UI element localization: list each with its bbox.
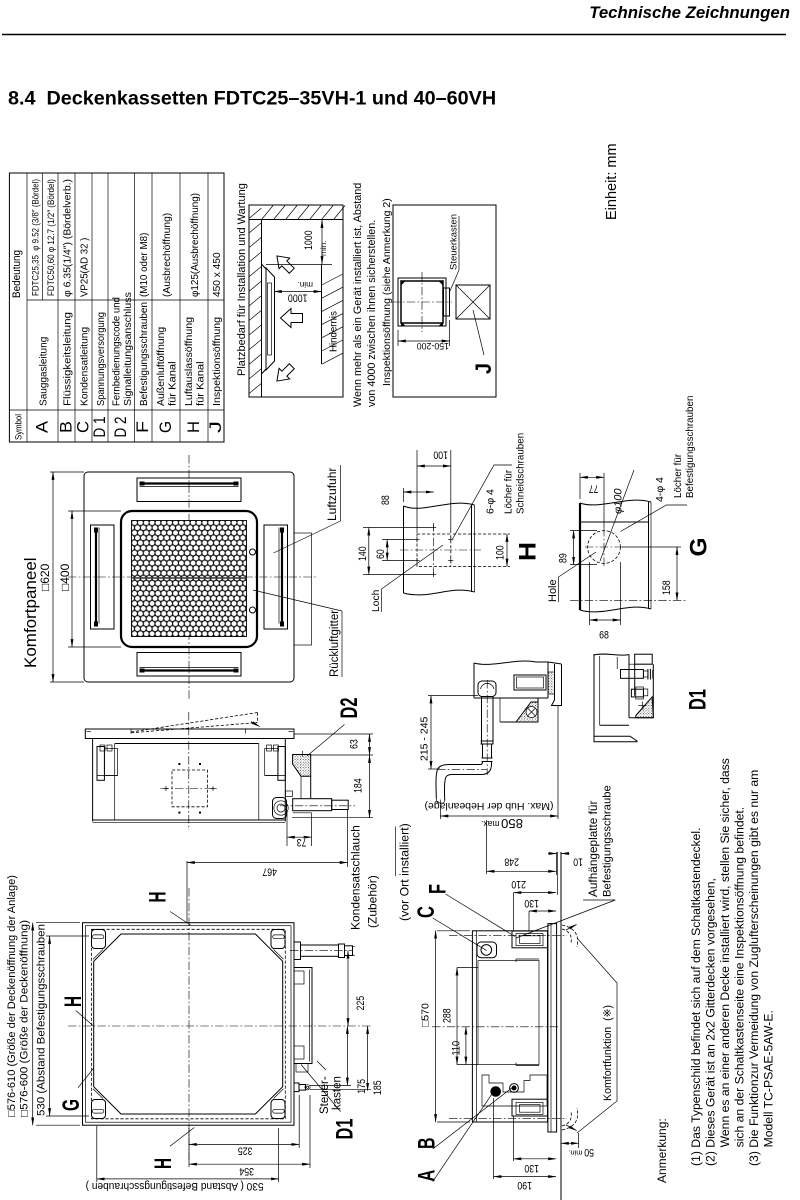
svg-text:□570: □570 [420,1003,432,1027]
svg-text:Befestigungsschrauben: Befestigungsschrauben [685,396,696,498]
svg-text:Rückluftgitter: Rückluftgitter [329,610,341,677]
svg-text:φ125(Ausbrechöffnung): φ125(Ausbrechöffnung) [190,193,201,297]
svg-text:Steuerkasten: Steuerkasten [449,214,460,270]
svg-text:FDTC25,35 φ 9.52 (3/8″ (Börde: FDTC25,35 φ 9.52 (3/8″ (Bördel) [31,179,42,296]
svg-text:B: B [57,421,75,433]
svg-text:325: 325 [238,1145,253,1157]
svg-text:130: 130 [524,1162,539,1174]
svg-text:C: C [74,421,92,433]
svg-text:G: G [58,1099,85,1111]
svg-text:FDTC50,60 φ 12.7 (1/2″ (Bördel: FDTC50,60 φ 12.7 (1/2″ (Bördel) [46,179,57,296]
svg-text:210: 210 [511,878,526,890]
svg-text:Fernbedienungscode und: Fernbedienungscode und [111,297,122,406]
svg-text:sich an der Schaltkastenseite: sich an der Schaltkastenseite eine Inspe… [733,807,747,1148]
svg-text:Spannungsversorgung: Spannungsversorgung [96,312,107,406]
svg-text:Sauggasleitung: Sauggasleitung [38,336,49,406]
svg-text:G: G [686,538,713,557]
svg-text:(3) Die Funktionzur Vermeidung: (3) Die Funktionzur Vermeidung von Zuglu… [747,770,761,1166]
svg-text:Aufhängeplatte für: Aufhängeplatte für [586,801,600,897]
svg-text:Technische Zeichnungen: Technische Zeichnungen [589,3,790,22]
svg-text:□576-600 (Größe der Deckenöffn: □576-600 (Größe der Deckenöffnung) [19,920,31,1117]
svg-text:H: H [185,421,203,433]
svg-text:8.4 Deckenkassetten FDTC25–35: 8.4 Deckenkassetten FDTC25–35VH-1 und 40… [8,88,496,110]
svg-text:D 2: D 2 [112,417,130,438]
svg-text:Komfortfunktion (※): Komfortfunktion (※) [602,1005,614,1101]
svg-text:4-φ 4: 4-φ 4 [654,477,666,502]
svg-text:Löcher für: Löcher für [504,469,515,514]
svg-text:D1: D1 [332,1119,359,1140]
svg-text:H: H [515,542,542,561]
svg-text:Wenn es an einer anderen Decke: Wenn es an einer anderen Decke installie… [718,758,732,1147]
svg-text:D2: D2 [336,698,363,719]
svg-text:min.: min. [319,241,328,256]
svg-text:von 4000 zwischen ihnen sicher: von 4000 zwischen ihnen sicherstellen. [366,220,378,407]
svg-text:Löcher für: Löcher für [673,453,684,498]
svg-text:110: 110 [450,1041,462,1056]
svg-text:100: 100 [495,545,507,560]
svg-text:150-200: 150-200 [417,341,449,351]
svg-text:φ 6.35(1/4″) (Bördelverb.): φ 6.35(1/4″) (Bördelverb.) [62,179,73,297]
svg-text:Hindernis: Hindernis [329,311,340,352]
svg-text:□400: □400 [58,563,72,591]
svg-text:50: 50 [584,1146,594,1158]
svg-text:77: 77 [589,483,599,495]
svg-text:175: 175 [356,1079,368,1094]
svg-text:354: 354 [239,1165,254,1177]
svg-text:Modell TC-PSAE-5AW-E.: Modell TC-PSAE-5AW-E. [762,1010,776,1147]
svg-text:63: 63 [349,739,361,749]
svg-text:(M10 oder M8): (M10 oder M8) [139,233,150,297]
svg-text:H: H [145,892,172,903]
svg-text:248: 248 [504,856,519,868]
svg-text:850: 850 [501,816,523,831]
svg-text:B: B [414,1138,441,1150]
svg-text:88: 88 [380,495,392,505]
svg-text:Wenn mehr als ein Gerät instal: Wenn mehr als ein Gerät installiert ist,… [352,183,364,407]
svg-text:Kondensatleitung: Kondensatleitung [79,327,90,406]
svg-text:Signalleitungsanschluss: Signalleitungsanschluss [123,292,134,406]
svg-text:10: 10 [573,856,583,868]
svg-text:J: J [471,363,496,374]
svg-text:1000: 1000 [303,230,315,250]
svg-text:max.: max. [481,818,500,829]
svg-text:Einheit: mm: Einheit: mm [604,143,620,220]
svg-text:60: 60 [375,549,387,559]
svg-text:89: 89 [558,553,570,563]
svg-text:158: 158 [661,580,673,595]
svg-text:(vor Ort installiert): (vor Ort installiert) [398,823,412,921]
svg-text:Steuer-: Steuer- [319,1076,331,1114]
svg-text:190: 190 [517,1179,532,1191]
svg-text:C: C [413,906,440,918]
svg-text:Hole: Hole [547,579,559,602]
svg-text:225: 225 [355,996,367,1011]
svg-text:F: F [425,884,452,894]
svg-text:Inspektionsöffnung (siehe Anme: Inspektionsöffnung (siehe Anmerkung 2) [381,198,393,386]
svg-text:G: G [157,421,175,433]
svg-text:D1: D1 [685,689,712,710]
svg-text:Außenluftöffnung: Außenluftöffnung [156,327,167,406]
svg-text:Schneidschrauben: Schneidschrauben [516,433,527,514]
svg-text:für Kanal: für Kanal [196,361,207,406]
svg-text:(Zubehör): (Zubehör) [366,875,380,928]
svg-text:D 1: D 1 [91,417,109,438]
svg-text:Anmerkung:: Anmerkung: [655,1118,669,1183]
svg-text:Symbol: Symbol [14,414,24,440]
svg-text:450 x 450: 450 x 450 [212,252,223,297]
svg-text:100: 100 [433,449,448,461]
svg-text:Inspektionsöffnung: Inspektionsöffnung [212,317,223,406]
svg-text:F: F [134,421,152,433]
svg-text:Befestigungsschrauben: Befestigungsschrauben [139,302,150,406]
svg-text:H: H [150,1158,177,1169]
svg-text:Luftzufuhr: Luftzufuhr [325,468,339,521]
svg-text:(2) Dieses Gerät ist an 2x2 Gi: (2) Dieses Gerät ist an 2x2 Gitterdecken… [704,878,718,1166]
svg-text:min.: min. [298,280,313,289]
svg-text:Kondensatschlauch: Kondensatschlauch [349,825,363,930]
svg-text:467: 467 [262,866,277,878]
svg-text:□620: □620 [38,563,52,591]
svg-text:(Max. Hub der Hebeanlage): (Max. Hub der Hebeanlage) [425,800,554,811]
svg-text:(1) Das Typenschild befindet s: (1) Das Typenschild befindet sich auf de… [689,828,703,1167]
svg-text:VP25(AD 32 ): VP25(AD 32 ) [79,238,90,297]
svg-text:Bedeutung: Bedeutung [11,250,23,298]
svg-text:530 (Abstand Befestigungsschra: 530 (Abstand Befestigungsschrauben [36,924,48,1116]
svg-text:min.: min. [568,1149,582,1158]
svg-text:6-φ 4: 6-φ 4 [485,489,497,514]
svg-text:Flüssigkeitsleitung: Flüssigkeitsleitung [62,312,73,406]
svg-text:140: 140 [357,546,369,561]
svg-text:184: 184 [353,778,365,793]
svg-text:H: H [60,996,87,1007]
svg-text:Platzbedarf für Installation u: Platzbedarf für Installation und Wartung [236,183,248,376]
svg-text:Befestigungsschraube: Befestigungsschraube [602,785,614,897]
svg-text:530 ( Abstand Befestigungsschr: 530 ( Abstand Befestigungsschrauben ) [86,1180,264,1192]
svg-text:□576-610 (Größe der Deckenöffn: □576-610 (Größe der Deckenöffnung der An… [6,875,18,1117]
svg-text:(Ausbrechöffnung): (Ausbrechöffnung) [162,213,173,297]
svg-text:1000: 1000 [288,292,308,304]
svg-text:73: 73 [297,836,307,848]
svg-text:130: 130 [524,897,539,909]
svg-text:215 - 245: 215 - 245 [419,716,431,761]
svg-text:A: A [33,421,51,433]
svg-text:Loch: Loch [371,589,382,612]
svg-text:185: 185 [372,1080,384,1095]
svg-text:für Kanal: für Kanal [168,361,179,406]
svg-text:68: 68 [599,630,609,642]
svg-text:kasten: kasten [332,1076,344,1110]
svg-text:288: 288 [442,1008,454,1023]
svg-text:J: J [207,421,225,433]
svg-text:Luftauslassöffnung: Luftauslassöffnung [184,317,195,406]
